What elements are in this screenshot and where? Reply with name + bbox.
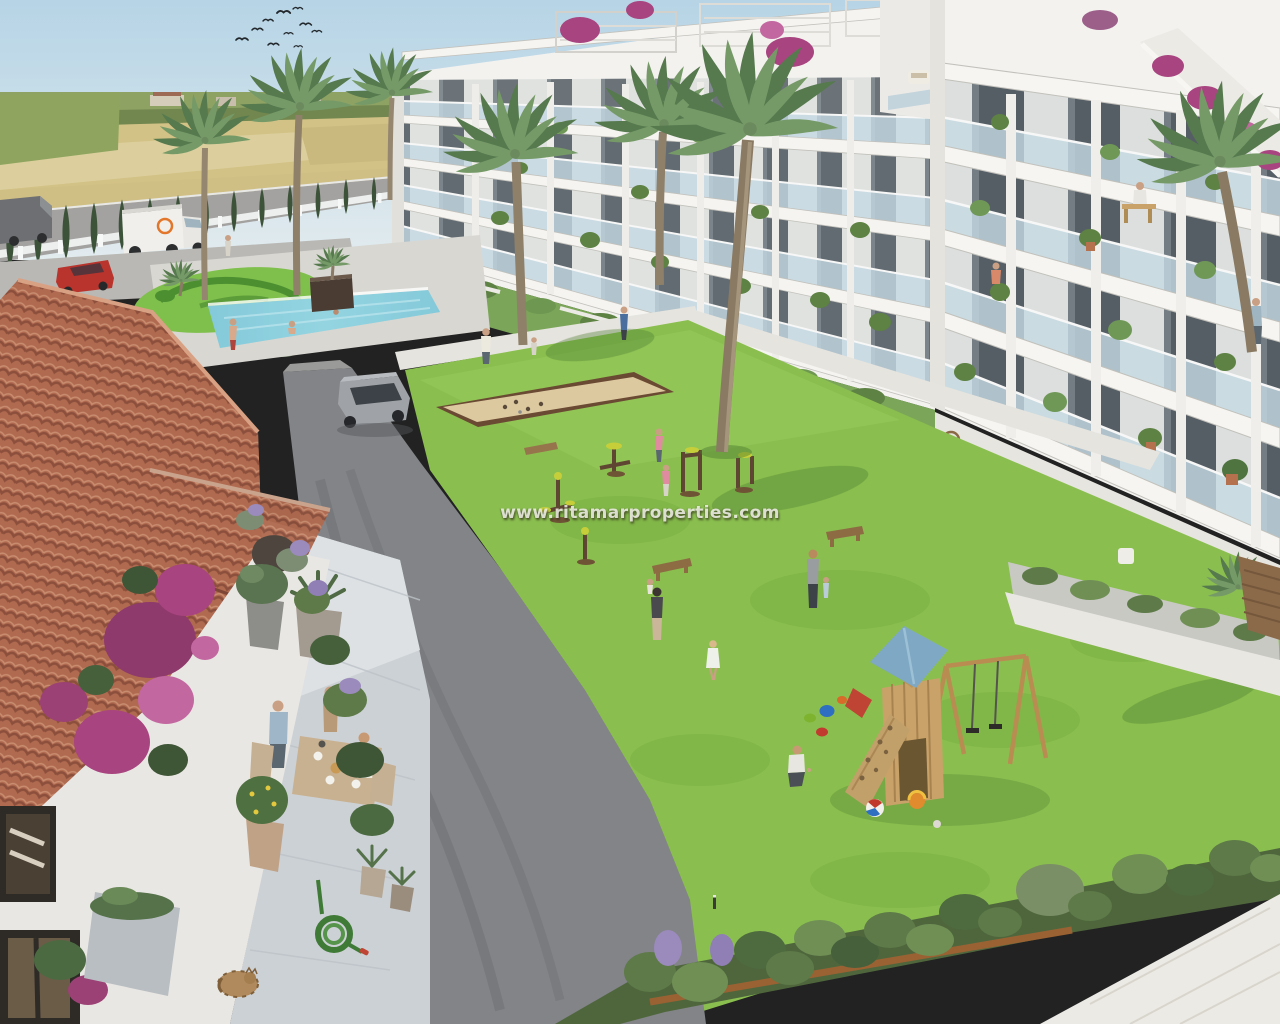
render-scene [0,0,1280,1024]
grey-suv [337,372,413,437]
toddler-on-lawn [531,337,537,355]
pedestrian-by-gate [225,235,231,256]
trough-planter [84,887,180,996]
shrub [34,940,86,980]
white-pot [1118,548,1134,564]
property-render-image: www.ritamarproperties.com [0,0,1280,1024]
block-corner [930,0,945,412]
delivery-van [0,196,52,246]
